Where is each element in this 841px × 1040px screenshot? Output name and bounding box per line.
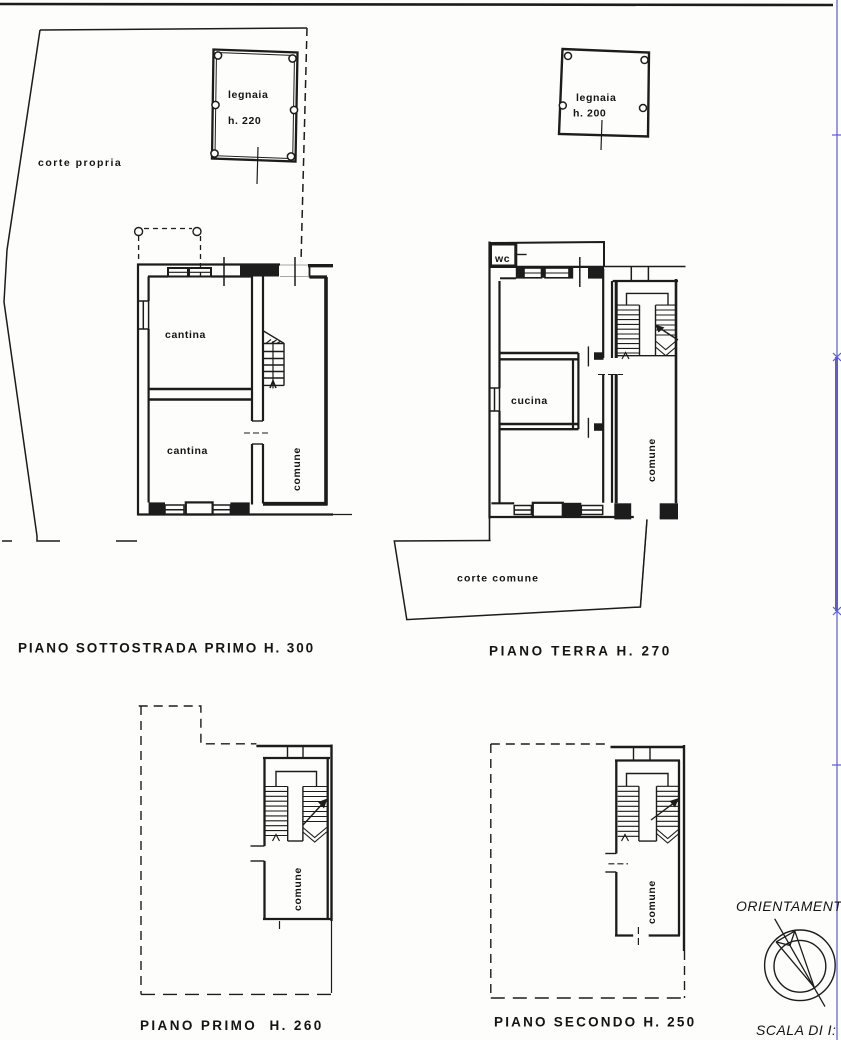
svg-text:PIANO SECONDO H. 250: PIANO SECONDO H. 250 — [494, 1015, 696, 1030]
svg-text:comune: comune — [646, 438, 658, 482]
svg-text:h. 200: h. 200 — [573, 108, 606, 120]
svg-text:cantina: cantina — [167, 445, 208, 457]
svg-text:legnaia: legnaia — [228, 89, 268, 101]
svg-text:PIANO PRIMO H. 260: PIANO PRIMO H. 260 — [140, 1018, 324, 1033]
svg-text:h. 220: h. 220 — [228, 115, 261, 127]
svg-text:comune: comune — [291, 447, 303, 491]
svg-text:comune: comune — [646, 880, 658, 924]
svg-text:comune: comune — [292, 867, 304, 911]
svg-text:legnaia: legnaia — [576, 92, 616, 104]
svg-text:wc: wc — [494, 253, 510, 265]
svg-text:corte propria: corte propria — [38, 157, 122, 169]
svg-text:cantina: cantina — [165, 329, 206, 341]
svg-text:SCALA DI I:: SCALA DI I: — [756, 1022, 836, 1038]
svg-text:ORIENTAMENTO: ORIENTAMENTO — [736, 898, 841, 914]
svg-text:corte comune: corte comune — [457, 573, 539, 585]
svg-text:PIANO SOTTOSTRADA PRIMO H. 300: PIANO SOTTOSTRADA PRIMO H. 300 — [18, 641, 315, 656]
svg-text:cucina: cucina — [511, 395, 548, 407]
svg-text:PIANO TERRA H. 270: PIANO TERRA H. 270 — [489, 644, 672, 659]
